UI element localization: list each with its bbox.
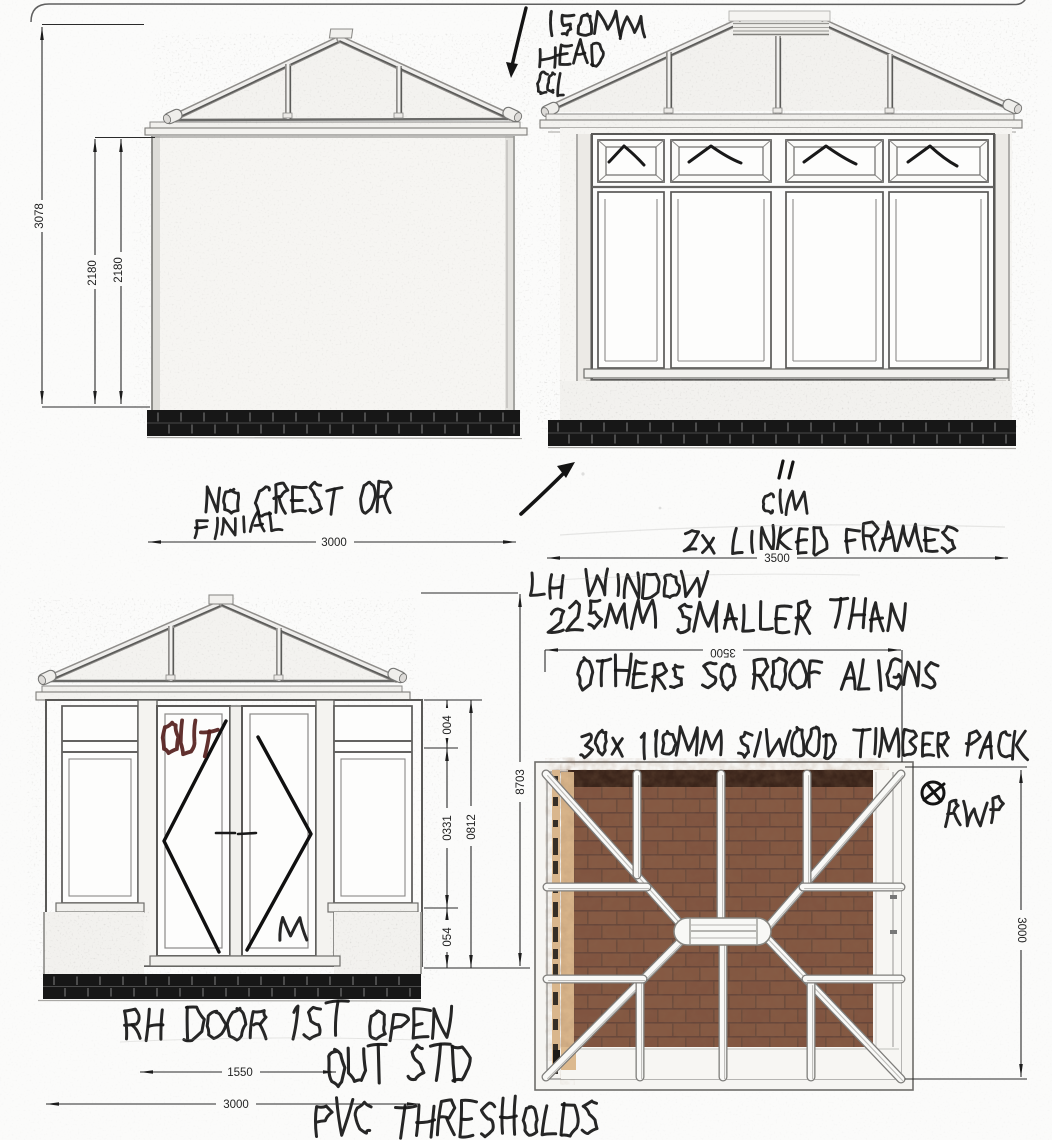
svg-text:2180: 2180 — [113, 257, 125, 283]
svg-text:3500: 3500 — [710, 646, 736, 658]
svg-text:054: 054 — [442, 927, 454, 947]
svg-text:3000: 3000 — [223, 1099, 249, 1111]
svg-text:0812: 0812 — [466, 814, 478, 840]
svg-text:004: 004 — [442, 715, 454, 735]
svg-text:3000: 3000 — [1015, 917, 1027, 943]
svg-text:1550: 1550 — [227, 1067, 253, 1079]
svg-text:2180: 2180 — [87, 260, 99, 286]
svg-text:3000: 3000 — [321, 537, 347, 549]
svg-text:3078: 3078 — [34, 203, 46, 229]
svg-text:8703: 8703 — [515, 769, 527, 795]
svg-text:3500: 3500 — [764, 553, 790, 565]
svg-text:0331: 0331 — [442, 815, 454, 841]
